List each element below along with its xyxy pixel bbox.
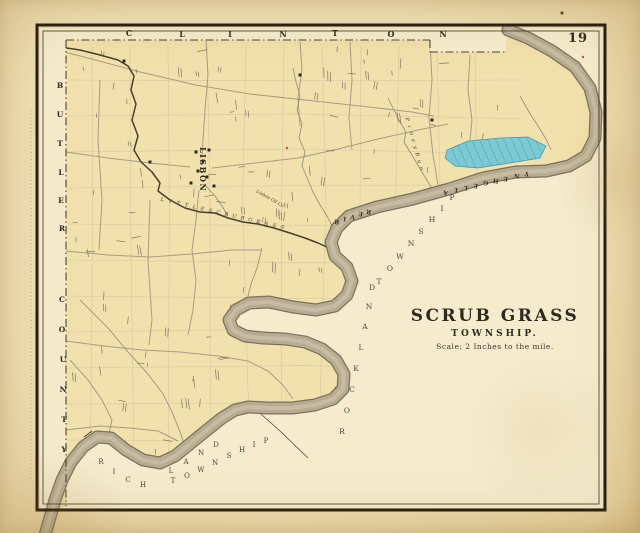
svg-text:T: T (171, 477, 176, 485)
svg-text:O: O (59, 325, 66, 334)
svg-text:I: I (113, 468, 116, 476)
title-block: SCRUB GRASS TOWNSHIP. Scale: 2 Inches to… (404, 306, 586, 351)
svg-text:H: H (429, 215, 436, 224)
svg-text:P: P (449, 193, 454, 202)
svg-text:I: I (441, 204, 444, 213)
svg-text:S: S (227, 452, 232, 460)
svg-text:C: C (349, 385, 355, 394)
svg-text:D: D (369, 283, 375, 292)
svg-text:U: U (60, 355, 67, 364)
svg-text:N: N (279, 29, 286, 39)
svg-text:T: T (61, 415, 67, 424)
svg-text:K: K (353, 364, 359, 373)
svg-text:Y: Y (60, 445, 67, 454)
svg-text:E: E (58, 196, 64, 205)
map-canvas: CLINTONBUTLERCOUNTYROCKLANDTOWNSHIPRICHL… (0, 0, 640, 533)
svg-text:I: I (228, 29, 232, 39)
svg-text:L: L (58, 168, 64, 177)
svg-text:O: O (344, 406, 350, 415)
svg-text:N: N (212, 459, 218, 467)
svg-text:H: H (140, 481, 146, 489)
svg-text:O: O (184, 472, 190, 480)
svg-text:T: T (332, 28, 338, 38)
svg-text:R: R (98, 458, 104, 466)
svg-text:N: N (408, 239, 415, 248)
svg-text:L: L (179, 29, 185, 39)
svg-text:C: C (125, 476, 130, 484)
svg-text:R: R (339, 427, 345, 436)
label-lisbon: LISBON (198, 147, 208, 192)
svg-text:D: D (213, 441, 219, 449)
map-scale-note: Scale: 2 Inches to the mile. (404, 342, 586, 351)
map-inner (40, 28, 603, 533)
atlas-page: CLINTONBUTLERCOUNTYROCKLANDTOWNSHIPRICHL… (0, 0, 640, 533)
svg-text:A: A (182, 458, 189, 466)
svg-text:T: T (57, 139, 63, 148)
svg-text:W: W (396, 252, 404, 261)
svg-text:R: R (59, 224, 66, 233)
svg-text:A: A (361, 322, 368, 331)
svg-text:L: L (169, 467, 174, 475)
svg-text:N: N (366, 302, 373, 311)
svg-text:H: H (239, 446, 245, 454)
svg-text:G: G (483, 179, 489, 187)
svg-text:C: C (126, 28, 132, 38)
map-subtitle: TOWNSHIP. (404, 329, 586, 339)
svg-text:S: S (418, 227, 423, 236)
svg-text:W: W (197, 466, 205, 474)
svg-text:N: N (198, 449, 204, 457)
svg-text:P: P (264, 437, 269, 445)
svg-text:N: N (439, 29, 446, 39)
svg-text:T: T (376, 277, 381, 286)
svg-text:U: U (57, 110, 64, 119)
svg-text:N: N (60, 385, 67, 394)
page-number: 19 (568, 31, 588, 46)
svg-text:O: O (388, 29, 395, 39)
svg-text:C: C (59, 295, 65, 304)
map-title: SCRUB GRASS (404, 306, 586, 326)
svg-text:I: I (253, 441, 256, 449)
svg-text:O: O (387, 264, 393, 273)
svg-text:B: B (57, 81, 63, 90)
svg-text:L: L (359, 343, 364, 352)
